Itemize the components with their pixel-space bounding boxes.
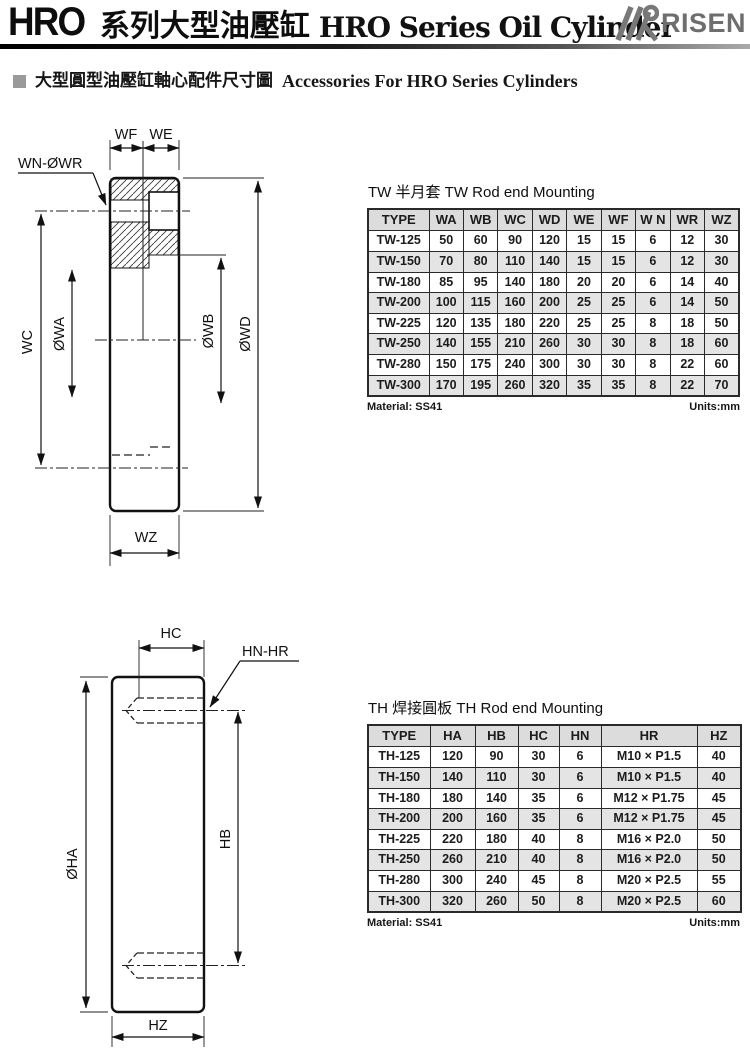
table-cell: TH-250 <box>368 850 430 871</box>
table-cell: 60 <box>463 231 497 252</box>
table-cell: 30 <box>518 767 559 788</box>
material-note: Material: SS41 <box>367 917 442 929</box>
table-cell: 50 <box>705 293 740 314</box>
table-cell: 8 <box>559 850 601 871</box>
column-header: TYPE <box>368 209 429 231</box>
table-cell: 260 <box>498 375 532 396</box>
table-row: TH-12512090306M10 × P1.540 <box>368 747 741 768</box>
table-cell: 120 <box>532 231 566 252</box>
risen-logo: RISEN <box>613 3 746 43</box>
table-row: TH-200200160356M12 × P1.7545 <box>368 809 741 830</box>
table-cell: TW-280 <box>368 355 429 376</box>
table-cell: M10 × P1.5 <box>601 747 697 768</box>
table-cell: 60 <box>705 355 740 376</box>
table-cell: TH-300 <box>368 891 430 912</box>
table-cell: 14 <box>670 293 704 314</box>
table-cell: 50 <box>518 891 559 912</box>
table-cell: 160 <box>498 293 532 314</box>
table-cell: 35 <box>567 375 601 396</box>
column-header: HN <box>559 725 601 747</box>
table-cell: TW-125 <box>368 231 429 252</box>
table-cell: 8 <box>559 829 601 850</box>
table-cell: 320 <box>430 891 475 912</box>
table-cell: 40 <box>697 767 741 788</box>
table-cell: 120 <box>430 747 475 768</box>
table-cell: 40 <box>518 850 559 871</box>
th-table: TYPEHAHBHCHNHRHZTH-12512090306M10 × P1.5… <box>367 724 742 913</box>
table-cell: 30 <box>705 231 740 252</box>
table-cell: 60 <box>697 891 741 912</box>
table-cell: 6 <box>636 231 670 252</box>
table-cell: TH-125 <box>368 747 430 768</box>
column-header: WD <box>532 209 566 231</box>
table-cell: 180 <box>430 788 475 809</box>
table-cell: 15 <box>601 251 635 272</box>
table-cell: TH-280 <box>368 871 430 892</box>
table-cell: 115 <box>463 293 497 314</box>
column-header: TYPE <box>368 725 430 747</box>
table-cell: 110 <box>498 251 532 272</box>
table-cell: 30 <box>601 355 635 376</box>
section-subtitle: 大型圓型油壓缸軸心配件尺寸圖 Accessories For HRO Serie… <box>13 71 578 92</box>
dim-label-wc: WC <box>20 330 36 354</box>
column-header: WF <box>601 209 635 231</box>
table-cell: 200 <box>430 809 475 830</box>
page-title: HRO 系列大型油壓缸 HRO Series Oil Cylinder <box>8 2 674 42</box>
table-cell: 6 <box>559 788 601 809</box>
table-row: TH-180180140356M12 × P1.7545 <box>368 788 741 809</box>
th-table-section: TH 焊接圓板 TH Rod end Mounting TYPEHAHBHCHN… <box>367 697 740 929</box>
table-cell: 50 <box>697 850 741 871</box>
table-cell: 80 <box>463 251 497 272</box>
table-row: TW-280150175240300303082260 <box>368 355 739 376</box>
table-cell: 100 <box>429 293 463 314</box>
table-cell: 90 <box>498 231 532 252</box>
page-header: HRO 系列大型油壓缸 HRO Series Oil Cylinder RISE… <box>0 0 750 50</box>
dim-label-wz: WZ <box>135 530 158 546</box>
square-bullet-icon <box>13 75 26 88</box>
table-row: TW-225120135180220252581850 <box>368 313 739 334</box>
tw-table-title: TW 半月套 TW Rod end Mounting <box>368 181 740 202</box>
table-cell: 18 <box>670 313 704 334</box>
table-cell: 70 <box>429 251 463 272</box>
table-row: TH-250260210408M16 × P2.050 <box>368 850 741 871</box>
column-header: HC <box>518 725 559 747</box>
subtitle-en: Accessories For HRO Series Cylinders <box>282 71 578 92</box>
table-cell: 8 <box>636 334 670 355</box>
table-cell: 300 <box>430 871 475 892</box>
table-cell: 260 <box>475 891 518 912</box>
table-cell: 6 <box>636 251 670 272</box>
table-cell: 50 <box>429 231 463 252</box>
column-header: HR <box>601 725 697 747</box>
th-table-title: TH 焊接圓板 TH Rod end Mounting <box>368 697 740 718</box>
dim-label-we: WE <box>149 127 173 143</box>
table-cell: 140 <box>475 788 518 809</box>
column-header: WZ <box>705 209 740 231</box>
table-cell: TW-225 <box>368 313 429 334</box>
table-cell: 85 <box>429 272 463 293</box>
table-cell: 22 <box>670 375 704 396</box>
tw-dimension-drawing: WF WE WN-ØWR WC ØWA ØWB ØWD WZ <box>0 110 320 582</box>
table-row: TH-225220180408M16 × P2.050 <box>368 829 741 850</box>
table-cell: 8 <box>559 871 601 892</box>
dim-label-wd: ØWD <box>238 316 254 351</box>
table-cell: 120 <box>429 313 463 334</box>
table-cell: 40 <box>697 747 741 768</box>
table-cell: TW-180 <box>368 272 429 293</box>
table-cell: 60 <box>705 334 740 355</box>
table-cell: 35 <box>601 375 635 396</box>
table-cell: 260 <box>430 850 475 871</box>
table-cell: 260 <box>532 334 566 355</box>
tw-table: TYPEWAWBWCWDWEWFW NWRWZTW-12550609012015… <box>367 208 740 397</box>
table-cell: 180 <box>532 272 566 293</box>
table-cell: 135 <box>463 313 497 334</box>
table-cell: TW-200 <box>368 293 429 314</box>
table-cell: 20 <box>601 272 635 293</box>
dim-label-hc: HC <box>161 626 182 642</box>
table-cell: 6 <box>559 767 601 788</box>
table-row: TH-300320260508M20 × P2.560 <box>368 891 741 912</box>
table-cell: 210 <box>498 334 532 355</box>
table-cell: 25 <box>601 293 635 314</box>
table-cell: TW-150 <box>368 251 429 272</box>
table-cell: TW-250 <box>368 334 429 355</box>
tw-table-section: TW 半月套 TW Rod end Mounting TYPEWAWBWCWDW… <box>367 181 740 413</box>
column-header: W N <box>636 209 670 231</box>
column-header: HB <box>475 725 518 747</box>
column-header: WE <box>567 209 601 231</box>
table-cell: 150 <box>429 355 463 376</box>
tw-table-footer: Material: SS41 Units:mm <box>367 401 740 413</box>
material-note: Material: SS41 <box>367 401 442 413</box>
brand-name: RISEN <box>661 10 746 37</box>
table-cell: 160 <box>475 809 518 830</box>
th-table-footer: Material: SS41 Units:mm <box>367 917 740 929</box>
table-cell: M20 × P2.5 <box>601 891 697 912</box>
dim-label-hb: HB <box>218 829 234 849</box>
table-cell: 240 <box>475 871 518 892</box>
table-cell: M16 × P2.0 <box>601 850 697 871</box>
table-cell: 180 <box>475 829 518 850</box>
table-cell: TH-150 <box>368 767 430 788</box>
table-cell: 140 <box>430 767 475 788</box>
dim-label-hn-hr: HN-HR <box>242 644 289 660</box>
table-cell: 220 <box>532 313 566 334</box>
series-title-cjk: 系列大型油壓缸 <box>100 11 310 43</box>
table-cell: 15 <box>601 231 635 252</box>
table-cell: 45 <box>697 809 741 830</box>
table-row: TH-280300240458M20 × P2.555 <box>368 871 741 892</box>
table-cell: 18 <box>670 334 704 355</box>
table-cell: M20 × P2.5 <box>601 871 697 892</box>
table-cell: 14 <box>670 272 704 293</box>
dim-label-wb: ØWB <box>201 314 217 349</box>
table-cell: 170 <box>429 375 463 396</box>
table-cell: 140 <box>429 334 463 355</box>
table-cell: 8 <box>636 355 670 376</box>
table-cell: 22 <box>670 355 704 376</box>
table-cell: M10 × P1.5 <box>601 767 697 788</box>
risen-logo-icon <box>613 3 659 43</box>
table-cell: 25 <box>567 293 601 314</box>
dim-label-wn-wr: WN-ØWR <box>18 156 82 172</box>
table-cell: 155 <box>463 334 497 355</box>
units-note: Units:mm <box>689 917 740 929</box>
table-cell: 70 <box>705 375 740 396</box>
table-cell: 30 <box>567 355 601 376</box>
column-header: WB <box>463 209 497 231</box>
table-header-row: TYPEHAHBHCHNHRHZ <box>368 725 741 747</box>
column-header: HZ <box>697 725 741 747</box>
table-cell: 6 <box>559 747 601 768</box>
catalog-page: HRO 系列大型油壓缸 HRO Series Oil Cylinder RISE… <box>0 0 750 1049</box>
table-cell: 40 <box>705 272 740 293</box>
table-cell: 40 <box>518 829 559 850</box>
dim-label-wa: ØWA <box>52 317 68 351</box>
table-cell: 25 <box>567 313 601 334</box>
header-rule <box>0 44 750 49</box>
column-header: WC <box>498 209 532 231</box>
table-cell: 30 <box>567 334 601 355</box>
table-cell: 12 <box>670 251 704 272</box>
subtitle-cjk: 大型圓型油壓缸軸心配件尺寸圖 <box>35 71 273 91</box>
table-cell: 110 <box>475 767 518 788</box>
table-cell: 300 <box>532 355 566 376</box>
units-note: Units:mm <box>689 401 740 413</box>
table-cell: M12 × P1.75 <box>601 809 697 830</box>
table-cell: 180 <box>498 313 532 334</box>
table-cell: 15 <box>567 251 601 272</box>
table-row: TH-150140110306M10 × P1.540 <box>368 767 741 788</box>
table-header-row: TYPEWAWBWCWDWEWFW NWRWZ <box>368 209 739 231</box>
dim-label-wf: WF <box>115 127 138 143</box>
table-cell: 45 <box>697 788 741 809</box>
table-cell: 35 <box>518 788 559 809</box>
table-row: TW-1808595140180202061440 <box>368 272 739 293</box>
table-cell: 6 <box>559 809 601 830</box>
table-cell: 320 <box>532 375 566 396</box>
table-cell: TH-225 <box>368 829 430 850</box>
table-cell: 220 <box>430 829 475 850</box>
table-cell: M16 × P2.0 <box>601 829 697 850</box>
dim-label-hz: HZ <box>148 1018 167 1034</box>
table-cell: 30 <box>601 334 635 355</box>
table-cell: 45 <box>518 871 559 892</box>
table-cell: 15 <box>567 231 601 252</box>
table-cell: 20 <box>567 272 601 293</box>
table-row: TW-250140155210260303081860 <box>368 334 739 355</box>
table-row: TW-300170195260320353582270 <box>368 375 739 396</box>
table-cell: 50 <box>697 829 741 850</box>
tw-part-outline <box>35 140 264 566</box>
table-cell: 90 <box>475 747 518 768</box>
column-header: WR <box>670 209 704 231</box>
table-cell: M12 × P1.75 <box>601 788 697 809</box>
table-cell: 8 <box>636 375 670 396</box>
column-header: HA <box>430 725 475 747</box>
table-cell: 8 <box>559 891 601 912</box>
table-cell: TH-200 <box>368 809 430 830</box>
table-cell: TH-180 <box>368 788 430 809</box>
table-cell: 8 <box>636 313 670 334</box>
table-cell: 200 <box>532 293 566 314</box>
table-cell: 240 <box>498 355 532 376</box>
table-cell: 35 <box>518 809 559 830</box>
table-cell: 30 <box>705 251 740 272</box>
table-row: TW-1507080110140151561230 <box>368 251 739 272</box>
table-cell: TW-300 <box>368 375 429 396</box>
table-cell: 12 <box>670 231 704 252</box>
table-cell: 50 <box>705 313 740 334</box>
table-cell: 210 <box>475 850 518 871</box>
table-cell: 6 <box>636 272 670 293</box>
table-cell: 140 <box>532 251 566 272</box>
column-header: WA <box>429 209 463 231</box>
table-cell: 25 <box>601 313 635 334</box>
table-cell: 175 <box>463 355 497 376</box>
dim-label-ha: ØHA <box>65 848 81 880</box>
table-cell: 195 <box>463 375 497 396</box>
table-cell: 140 <box>498 272 532 293</box>
series-code: HRO <box>8 2 84 42</box>
table-row: TW-200100115160200252561450 <box>368 293 739 314</box>
table-cell: 55 <box>697 871 741 892</box>
table-row: TW-125506090120151561230 <box>368 231 739 252</box>
table-cell: 30 <box>518 747 559 768</box>
table-cell: 95 <box>463 272 497 293</box>
table-cell: 6 <box>636 293 670 314</box>
th-dimension-drawing: HC HN-HR ØHA HB HZ <box>0 600 330 1049</box>
